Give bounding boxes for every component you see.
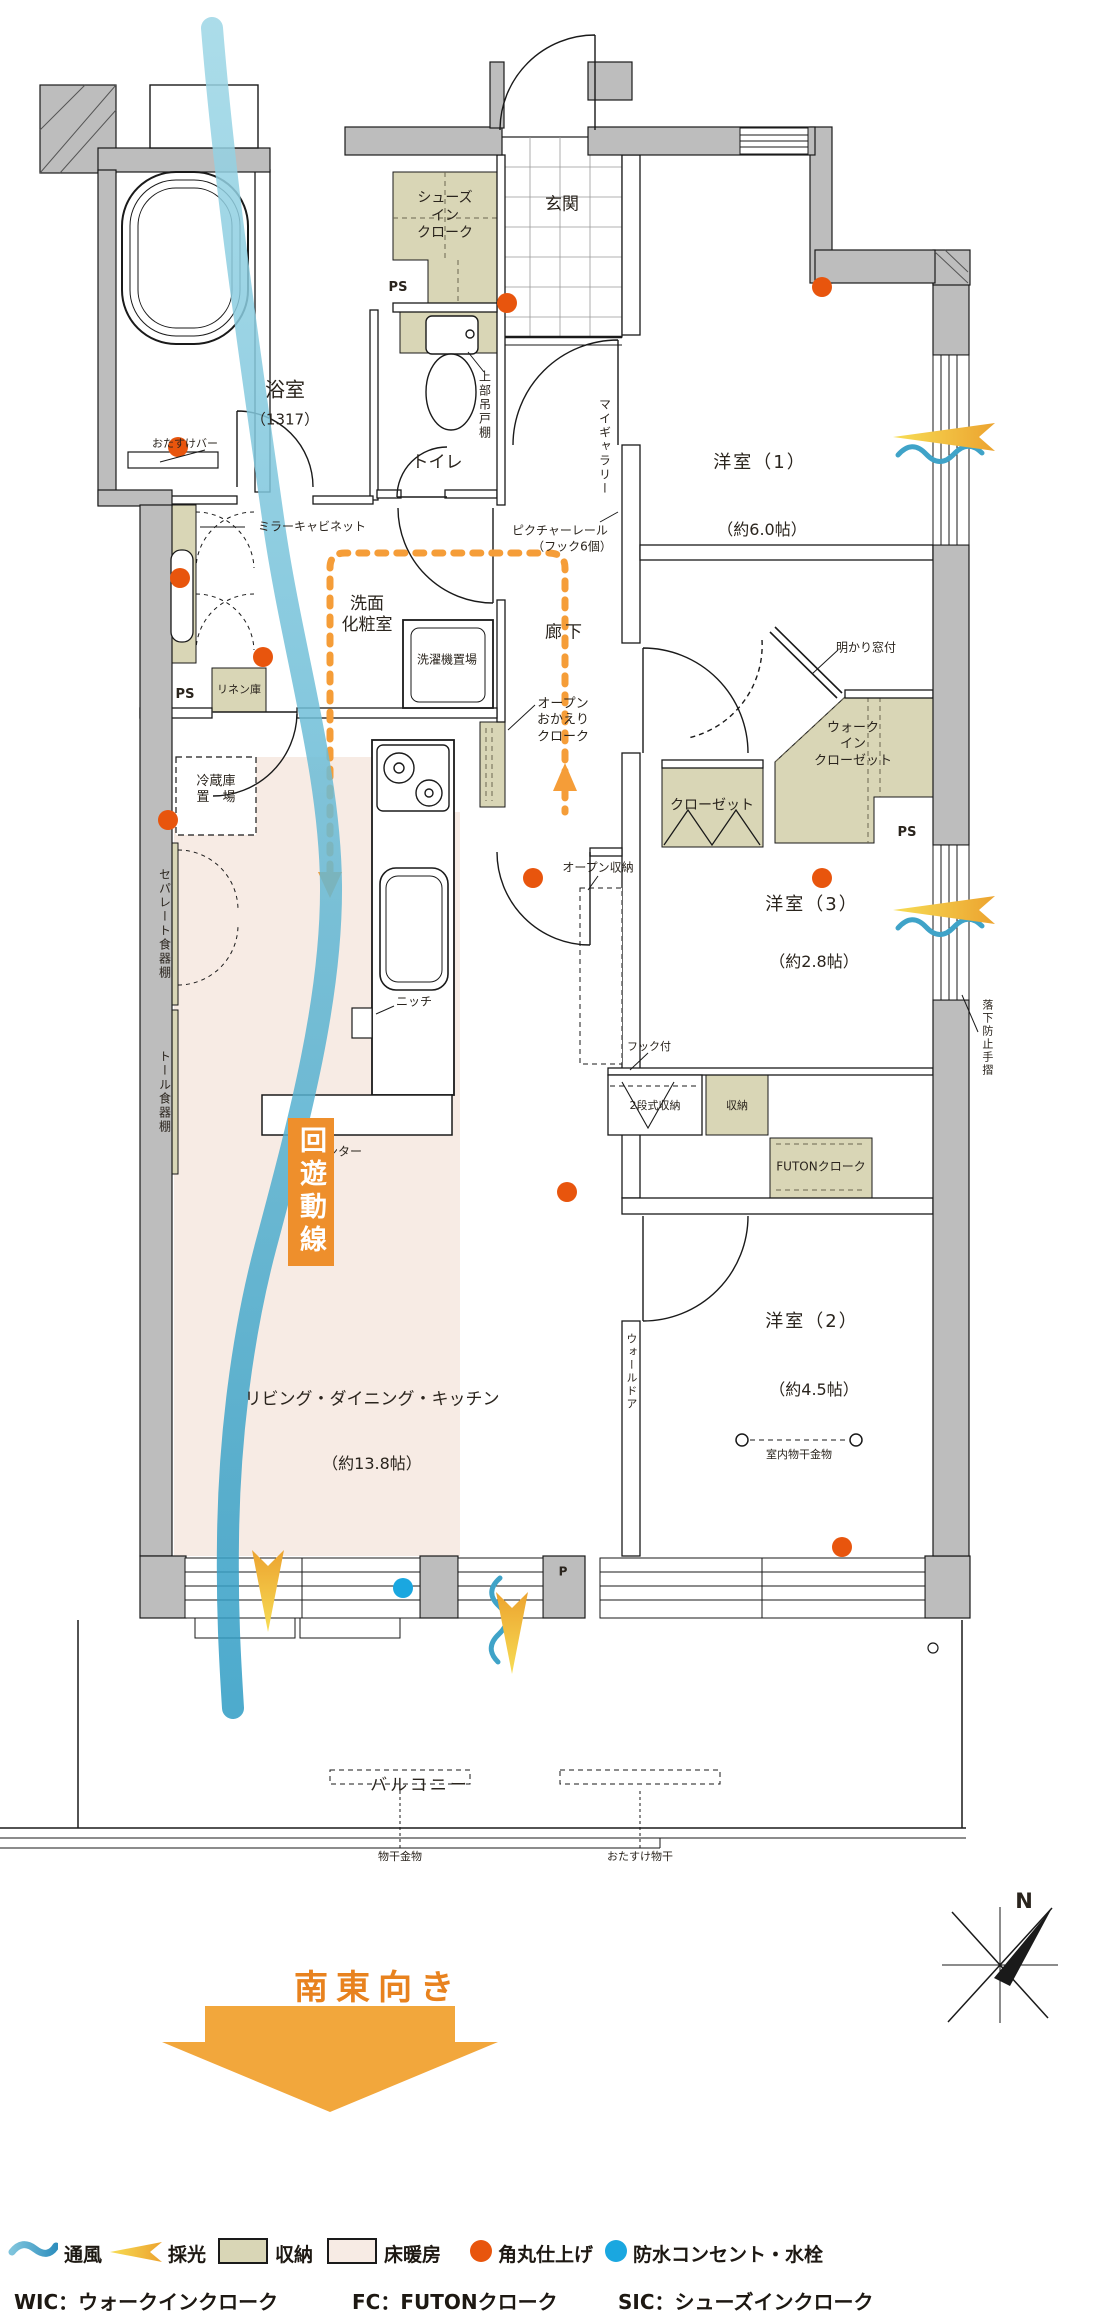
label-drying-fixture: 物干金物 — [375, 1850, 425, 1864]
legend-storage-label: 収納 — [275, 2240, 313, 2267]
entrance-door — [500, 35, 595, 130]
label-upper-cabinet: 上部吊戸棚 — [477, 370, 492, 440]
sic-line3: クローク — [417, 225, 473, 243]
label-hallway: 廊下 — [545, 622, 585, 643]
label-ps-wic: PS — [898, 825, 917, 841]
balcony-outline — [0, 1620, 966, 1848]
label-two-tier-storage: 2段式収納 — [630, 1099, 681, 1113]
label-bath-size: （1317） — [251, 411, 319, 430]
label-tall-cupboard: トール食器棚 — [157, 1050, 172, 1134]
okaeri-line3: クローク — [537, 729, 589, 745]
label-room1: 洋室（1） — [713, 452, 806, 475]
room2-balcony-window — [600, 1558, 925, 1618]
balcony-step-1 — [195, 1618, 295, 1638]
label-balcony: バルコニー — [370, 1775, 470, 1796]
label-toilet: トイレ — [412, 452, 463, 473]
otasuke-drying-shape — [560, 1770, 720, 1784]
balcony-step-2 — [300, 1618, 400, 1638]
wic-line2: イン — [840, 737, 866, 753]
room1-top-window — [740, 128, 808, 154]
label-picture-rail: ピクチャーレール — [512, 524, 608, 539]
indoor-drying-hooks — [736, 1434, 862, 1446]
bath-upper-niche — [150, 85, 258, 148]
daylight-arrow-icon — [108, 2241, 164, 2263]
southeast-arrow — [162, 2006, 498, 2112]
floor-plan-drawing — [0, 0, 1105, 2315]
abbr-sic: SIC：シューズインクローク — [618, 2286, 874, 2315]
wic-door-swing — [688, 640, 762, 738]
label-hook: フック付 — [627, 1040, 671, 1054]
label-circulation-route: 回遊動線 — [288, 1118, 334, 1266]
rounded-corner-dot — [470, 2240, 492, 2262]
balcony-drain — [928, 1643, 938, 1653]
route-arrow-up — [553, 763, 577, 791]
wic-diagonal-door — [770, 627, 842, 698]
sic-line2: イン — [431, 207, 459, 225]
label-picture-rail-sub: （フック6個） — [532, 540, 612, 555]
label-storage: 収納 — [726, 1099, 748, 1113]
label-linen: リネン庫 — [217, 683, 261, 697]
stove — [377, 745, 449, 811]
label-genkan: 玄関 — [545, 194, 579, 215]
label-fall-prevention: 落下防止手摺 — [980, 999, 994, 1077]
label-niche: ニッチ — [396, 995, 432, 1010]
washbasin — [171, 550, 193, 642]
wic-line1: ウォーク — [827, 721, 879, 737]
label-room1-size: （約6.0帖） — [717, 520, 806, 540]
room2-door — [643, 1216, 748, 1321]
label-wall-door: ウォールドア — [624, 1333, 638, 1411]
label-wic: ウォーク イン クローゼット — [814, 721, 892, 770]
label-ps-washroom: PS — [176, 687, 195, 703]
okaeri-line1: オープン — [537, 697, 588, 713]
walk-in-closet-shape — [775, 697, 933, 843]
room1-side-window — [933, 355, 969, 545]
label-ldk: リビング・ダイニング・キッチン — [245, 1389, 500, 1410]
open-storage-niche — [580, 888, 622, 1064]
label-separate-cupboard: セパレート食器棚 — [157, 868, 172, 980]
label-open-storage: オープン収納 — [562, 861, 633, 876]
floor-plan-canvas: 玄関 シューズ イン クローク PS PS PS P 浴室 （1317） おたす… — [0, 0, 1105, 2315]
label-bath: 浴室 — [265, 378, 305, 403]
abbr-fc: FC：FUTONクローク — [352, 2286, 558, 2315]
toilet-fixture — [426, 316, 478, 430]
label-grab-bar: おたすけバー — [152, 437, 218, 451]
room3-door — [643, 648, 748, 753]
label-pillar: P — [559, 1565, 568, 1580]
label-mirror-cabinet: ミラーキャビネット — [258, 520, 366, 535]
label-closet: クローゼット — [670, 797, 754, 815]
powder-line2: 化粧室 — [342, 615, 393, 636]
label-light-window: 明かり窓付 — [836, 641, 896, 656]
waterproof-outlet-legend-dot — [605, 2240, 627, 2262]
label-indoor-drying: 室内物干金物 — [766, 1448, 832, 1462]
label-room3-size: （約2.8帖） — [769, 952, 858, 972]
compass-icon — [942, 1907, 1058, 2023]
label-powder-room: 洗面 化粧室 — [342, 594, 393, 637]
powder-line1: 洗面 — [350, 594, 384, 615]
storage-swatch — [218, 2238, 268, 2264]
legend-wind-label: 通風 — [64, 2240, 102, 2267]
mirror-cabinet-doors — [196, 512, 254, 650]
waterproof-outlet-dot — [393, 1578, 413, 1598]
legend-floor-heating-label: 床暖房 — [384, 2240, 441, 2267]
kitchen-sink — [380, 868, 448, 990]
legend-waterproof-label: 防水コンセント・水栓 — [633, 2240, 823, 2267]
fridge-line2: 置 場 — [196, 790, 235, 806]
fridge-line1: 冷蔵庫 — [196, 774, 235, 790]
label-otasuke-drying: おたすけ物干 — [604, 1850, 676, 1864]
label-futon-cloak: FUTONクローク — [776, 1160, 865, 1175]
label-ps-entrance: PS — [389, 280, 408, 296]
label-my-gallery: マイギャラリー — [597, 398, 612, 496]
legend-daylight-label: 採光 — [168, 2240, 206, 2267]
label-fridge: 冷蔵庫 置 場 — [196, 774, 235, 807]
okaeri-line2: おかえり — [537, 713, 589, 729]
label-ldk-size: （約13.8帖） — [322, 1454, 422, 1474]
label-room2: 洋室（2） — [765, 1311, 858, 1334]
label-washer: 洗濯機置場 — [417, 653, 477, 668]
label-shoes-in-closet: シューズ イン クローク — [417, 190, 473, 243]
sic-line1: シューズ — [417, 190, 472, 208]
niche-shape — [352, 1008, 372, 1038]
legend-rounded-corner-label: 角丸仕上げ — [498, 2240, 593, 2267]
wic-line3: クローゼット — [814, 753, 892, 769]
label-direction: 南東向き — [294, 1967, 462, 2010]
wind-wave-icon — [8, 2236, 58, 2264]
label-room2-size: （約4.5帖） — [769, 1380, 858, 1400]
genkan-tile-floor — [500, 137, 622, 345]
label-okaeri-cloak: オープン おかえり クローク — [537, 697, 589, 746]
floor-heating-swatch — [327, 2238, 377, 2264]
abbr-wic: WIC：ウォークインクローク — [14, 2286, 278, 2315]
label-room3: 洋室（3） — [765, 894, 858, 917]
label-north: N — [1015, 1888, 1033, 1914]
